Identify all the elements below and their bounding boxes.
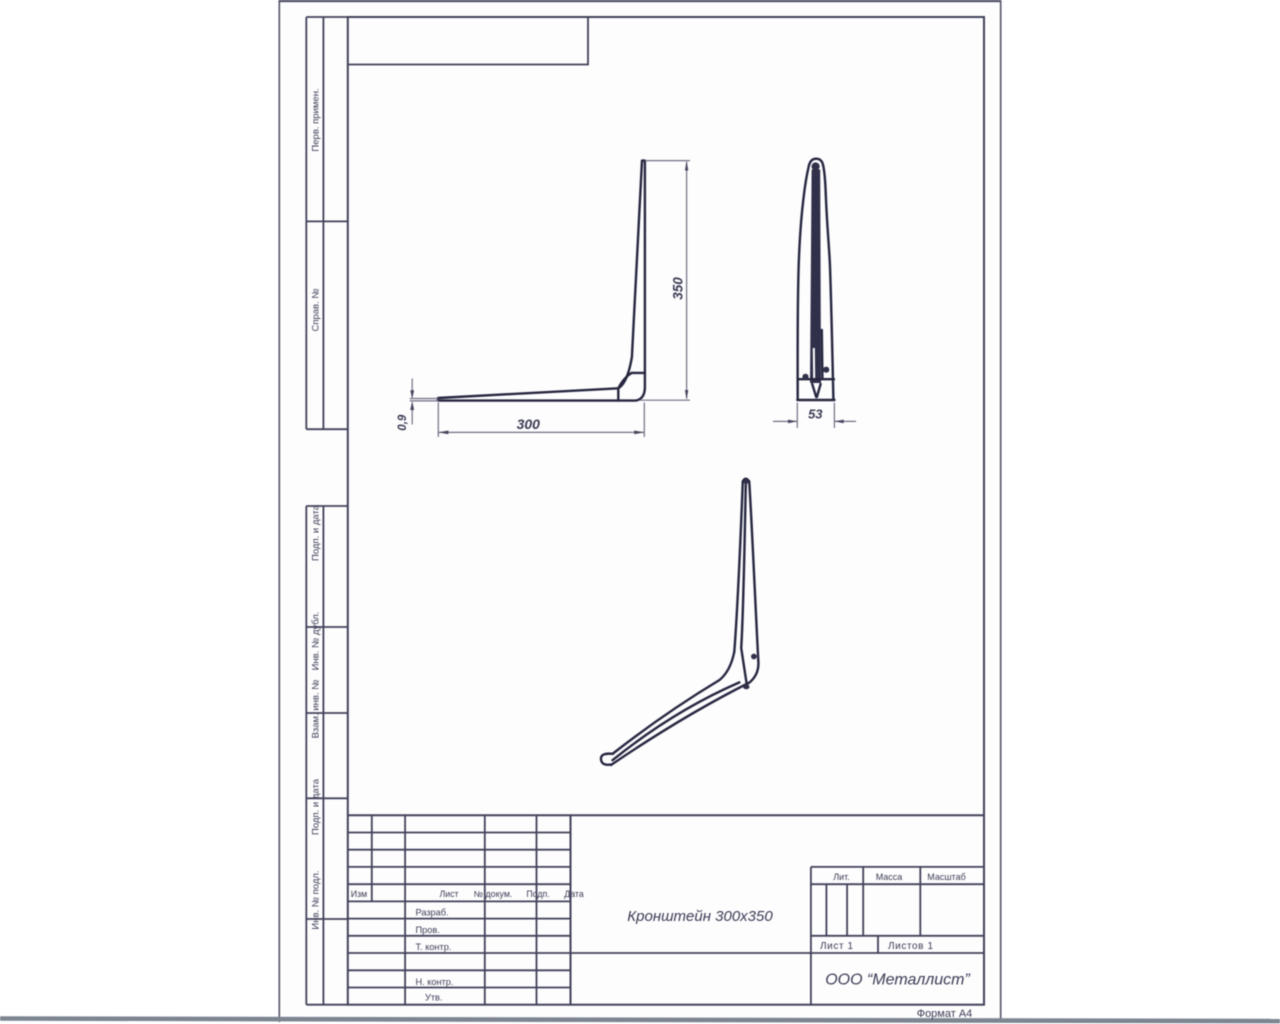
- svg-text:Перв. примен.: Перв. примен.: [311, 88, 322, 151]
- svg-text:Разраб.: Разраб.: [416, 908, 449, 918]
- svg-text:Пров.: Пров.: [416, 925, 440, 935]
- svg-text:Кронштейн 300х350: Кронштейн 300х350: [627, 908, 773, 925]
- svg-text:Инв. № дубл.: Инв. № дубл.: [311, 612, 322, 671]
- svg-text:Н. контр.: Н. контр.: [416, 977, 454, 987]
- svg-text:350: 350: [671, 277, 686, 300]
- svg-text:Изм: Изм: [351, 889, 367, 899]
- svg-text:300: 300: [517, 416, 541, 432]
- svg-text:Справ. №: Справ. №: [311, 288, 322, 331]
- svg-text:53: 53: [808, 407, 823, 422]
- svg-text:Утв.: Утв.: [425, 993, 442, 1003]
- svg-text:№ докум.: № докум.: [474, 889, 513, 899]
- svg-text:Масса: Масса: [876, 872, 903, 882]
- svg-text:Т. контр.: Т. контр.: [416, 942, 452, 952]
- svg-text:Масштаб: Масштаб: [927, 872, 966, 882]
- svg-text:Дата: Дата: [564, 889, 584, 899]
- svg-text:Подп. и дата: Подп. и дата: [311, 778, 322, 835]
- svg-text:Лит.: Лит.: [833, 872, 850, 882]
- svg-text:Лист 1: Лист 1: [820, 941, 854, 952]
- svg-text:Формат А4: Формат А4: [917, 1008, 973, 1020]
- svg-text:ООО “Металлист”: ООО “Металлист”: [825, 972, 970, 989]
- svg-text:Листов 1: Листов 1: [888, 941, 934, 952]
- svg-text:Подп.: Подп.: [526, 889, 549, 899]
- svg-text:Подп. и дата: Подп. и дата: [311, 504, 322, 561]
- svg-text:Инв. № подл.: Инв. № подл.: [311, 870, 322, 929]
- svg-text:0,9: 0,9: [397, 414, 409, 431]
- svg-text:Лист: Лист: [439, 889, 458, 899]
- svg-text:Взам. инв. №: Взам. инв. №: [311, 680, 322, 739]
